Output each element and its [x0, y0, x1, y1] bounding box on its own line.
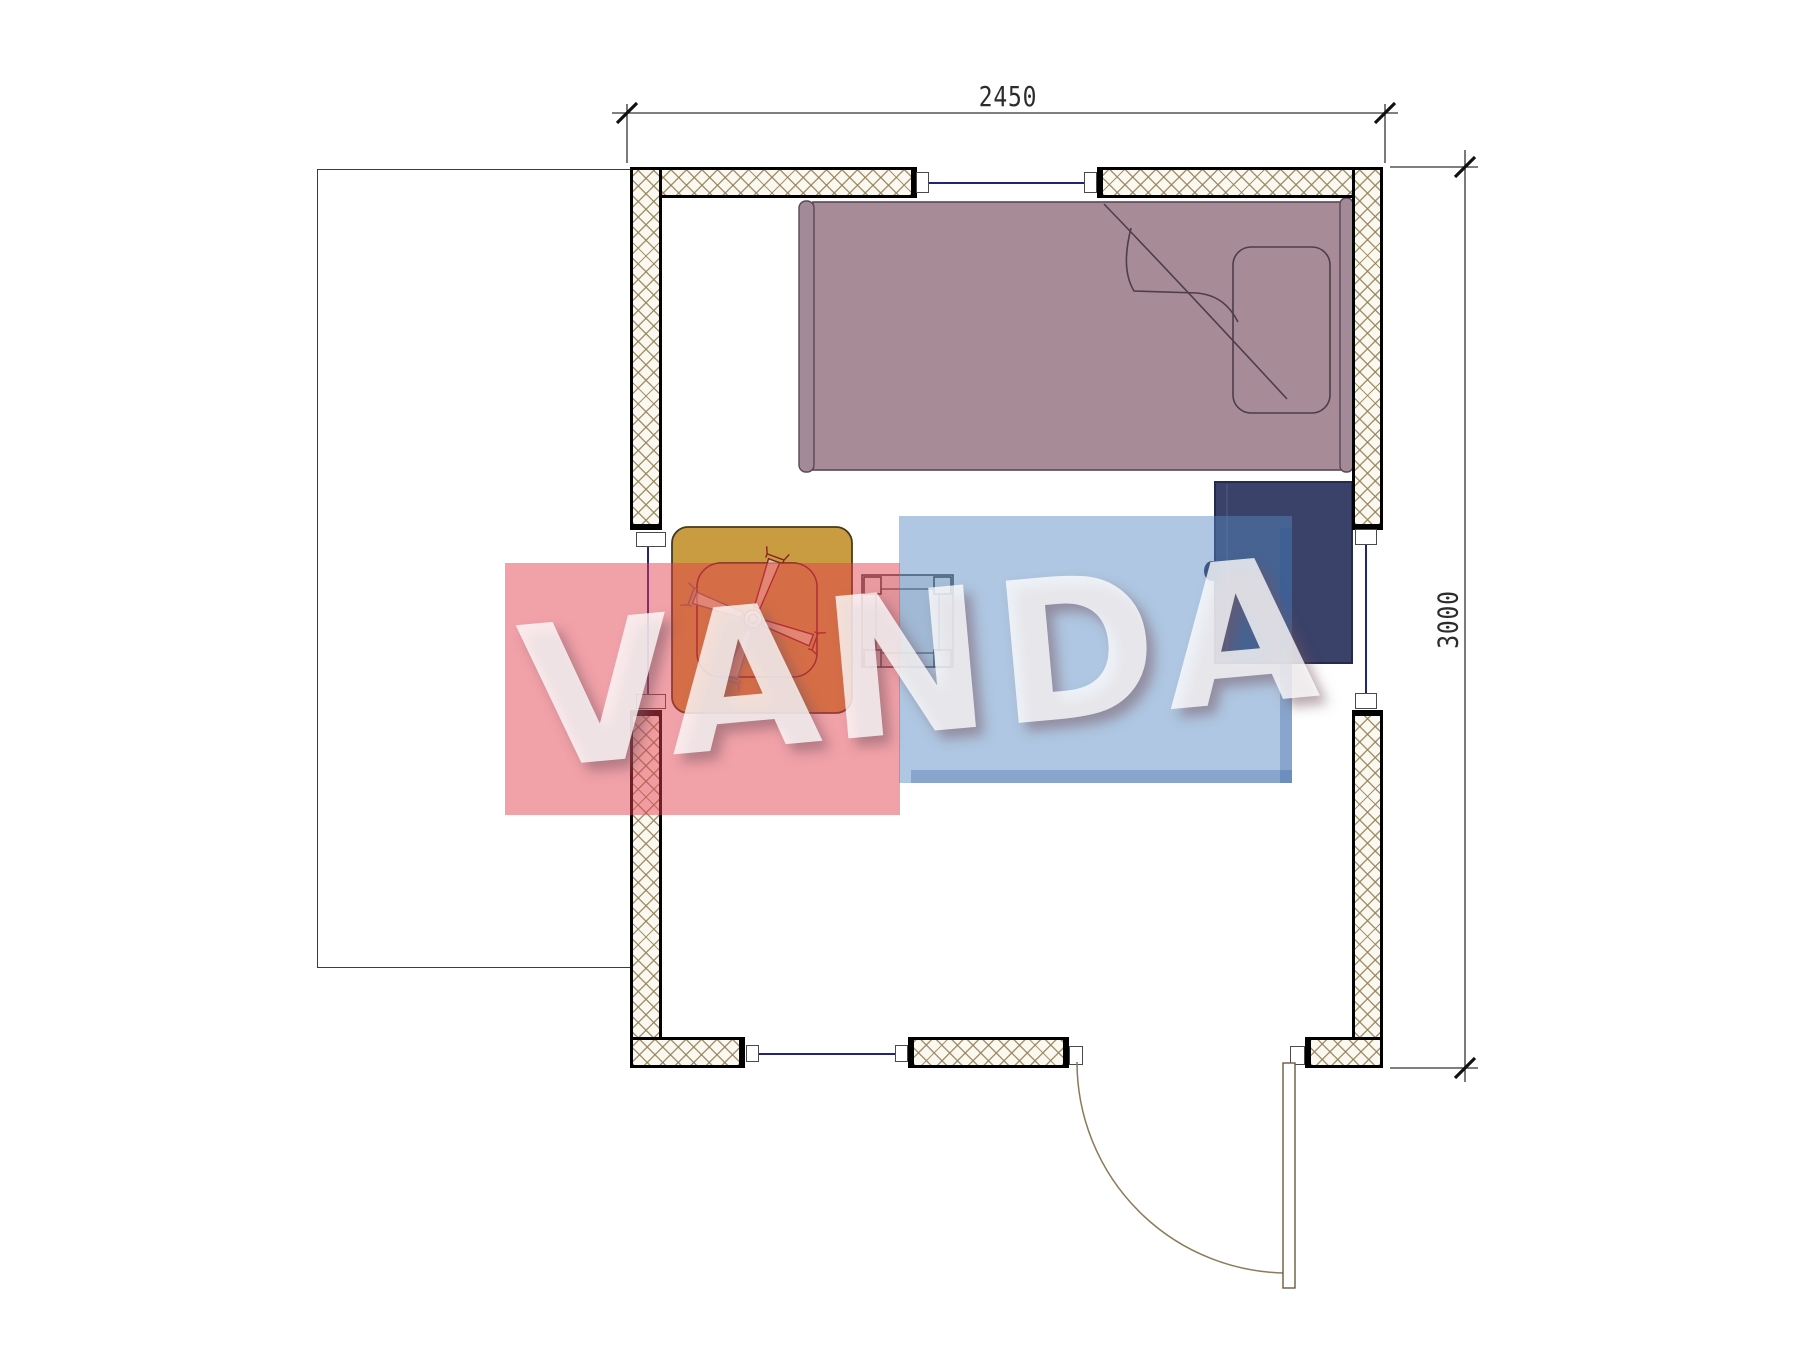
- door: [1077, 1062, 1295, 1288]
- dimension-label-width: 2450: [963, 80, 1053, 113]
- door-leaf: [1283, 1063, 1295, 1288]
- floor-plan-canvas: 2450 3000 VANDA: [0, 0, 1800, 1350]
- dimension-label-height: 3000: [1432, 574, 1465, 664]
- door-swing-arc: [1077, 1062, 1288, 1273]
